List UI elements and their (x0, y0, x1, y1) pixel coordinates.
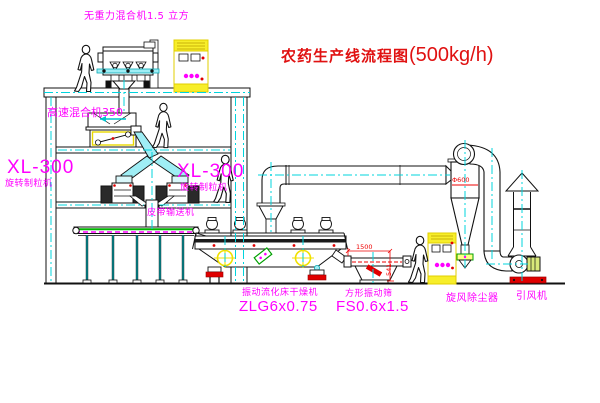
label-gravity-mixer: 无重力混合机1.5 立方 (84, 12, 189, 22)
control-cabinet-bottom (428, 233, 456, 284)
process-flow-diagram: 农药生产线流程图(500kg/h) 无重力混合机1.5 立方 高速混合机350 … (0, 0, 600, 403)
label-dryer-model: ZLG6x0.75 (239, 299, 318, 314)
dim-screen-length: 1500 (356, 244, 373, 251)
label-dryer-name: 振动流化床干燥机 (242, 289, 318, 298)
dim-screen-height: 541 (386, 264, 393, 276)
label-granulator-left-name: 旋转制粒机 (5, 180, 53, 189)
exhaust-duct (257, 165, 451, 233)
vibrating-screen (344, 256, 411, 283)
label-granulator-right-name: 旋转制粒机 (180, 184, 228, 193)
diagram-title: 农药生产线流程图(500kg/h) (281, 44, 494, 67)
label-cyclone: 旋风除尘器 (446, 294, 499, 304)
worker-figure-floor2 (152, 103, 171, 147)
label-granulator-right-model: XL-300 (177, 162, 244, 181)
worker-figure-roof (75, 45, 94, 91)
label-belt-conveyor: 皮带输送机 (147, 209, 195, 218)
diagram-title-cn: 农药生产线流程图 (281, 47, 409, 65)
diagram-title-capacity: (500kg/h) (409, 44, 494, 66)
dim-cyclone-diameter: Φ600 (452, 177, 470, 184)
label-granulator-left-model: XL-300 (7, 158, 74, 177)
label-high-speed-mixer: 高速混合机350 (47, 107, 123, 118)
control-cabinet-top (174, 40, 208, 92)
gravity-free-mixer (97, 40, 159, 89)
belt-conveyor (73, 227, 206, 283)
induced-draft-fan (510, 255, 546, 283)
label-fan: 引风机 (516, 292, 548, 302)
label-screen-model: FS0.6x1.5 (336, 299, 409, 314)
rotary-granulator-left (101, 183, 148, 206)
